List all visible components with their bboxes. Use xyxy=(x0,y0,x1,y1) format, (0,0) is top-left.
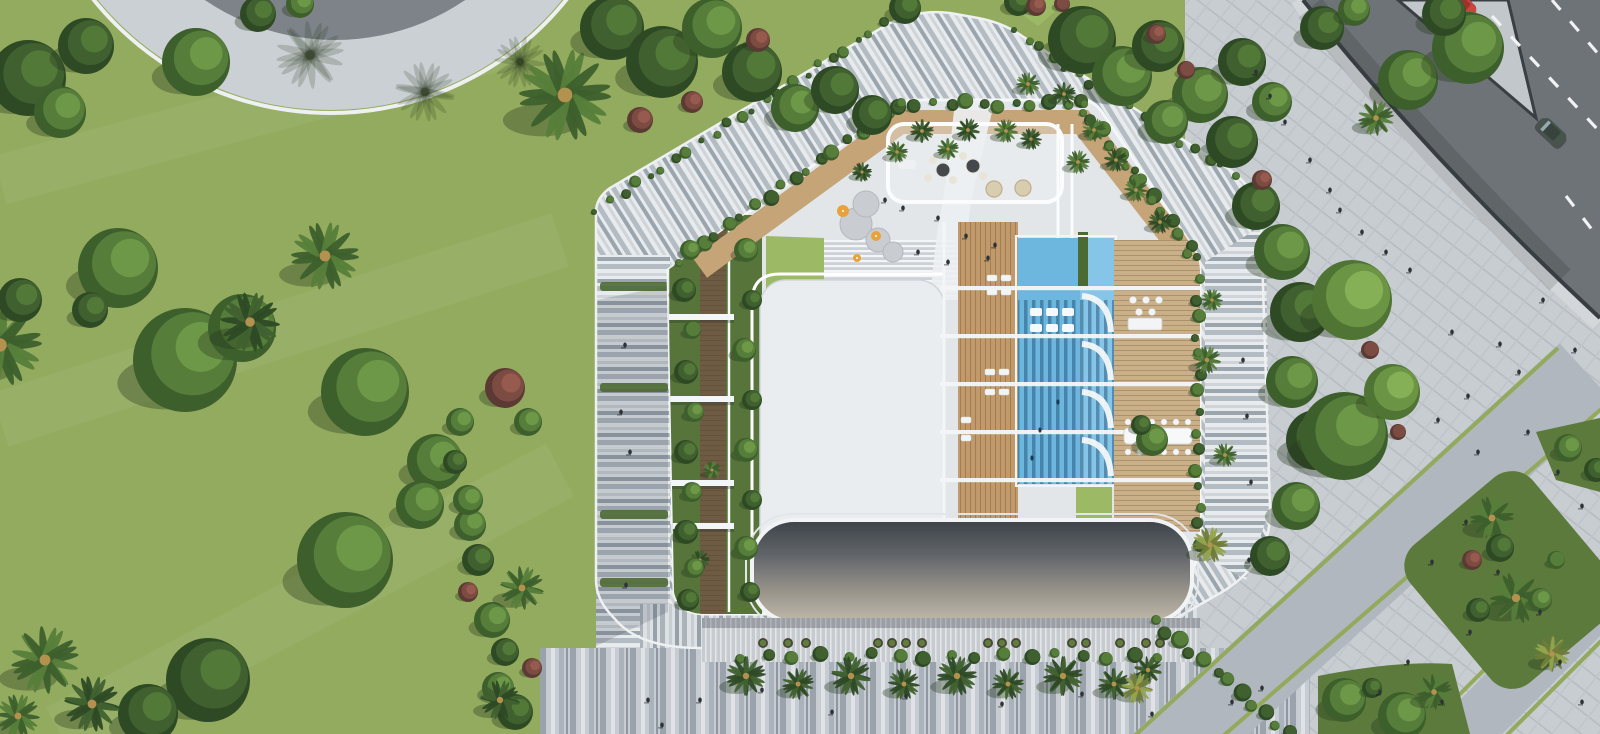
planter-plant xyxy=(803,640,809,646)
tree-highlight xyxy=(690,94,701,105)
person-marker xyxy=(916,250,920,255)
palm-crown xyxy=(88,700,97,709)
tree-highlight xyxy=(756,31,768,43)
palm-crown xyxy=(1207,542,1213,548)
person-marker xyxy=(619,410,623,415)
tree-highlight xyxy=(1277,232,1304,259)
pool-daybed xyxy=(1030,324,1042,332)
tree-canopy xyxy=(1014,99,1020,105)
planter-plant xyxy=(919,640,925,646)
tree-highlight xyxy=(684,363,696,375)
tree-canopy xyxy=(739,111,749,121)
tree-highlight xyxy=(416,487,439,510)
tree-highlight xyxy=(475,548,490,563)
tree-canopy xyxy=(1247,700,1257,710)
tree-highlight xyxy=(688,243,698,253)
person-marker xyxy=(1573,348,1577,353)
tree-canopy xyxy=(592,209,597,214)
tree-highlight xyxy=(682,281,694,293)
tree-highlight xyxy=(1538,591,1550,603)
palm-crown xyxy=(1549,651,1555,657)
tree-highlight xyxy=(525,412,538,425)
tree-highlight xyxy=(143,692,172,721)
person-marker xyxy=(986,256,990,261)
tree-highlight xyxy=(1162,106,1183,127)
tree-canopy xyxy=(1148,196,1156,204)
tree-canopy xyxy=(909,100,920,111)
person-marker xyxy=(964,234,968,239)
person-marker xyxy=(1384,250,1388,255)
tree-highlight xyxy=(467,513,482,528)
tree-canopy xyxy=(930,98,936,104)
tree-highlight xyxy=(692,561,702,571)
tree-canopy xyxy=(1174,631,1188,645)
tree-canopy xyxy=(1192,144,1200,152)
person-marker xyxy=(1450,330,1454,335)
palm-crown xyxy=(497,697,503,703)
tree-canopy xyxy=(1184,648,1194,658)
tree-canopy xyxy=(1195,443,1205,453)
person-marker xyxy=(1308,158,1312,163)
tree-canopy xyxy=(1193,429,1201,437)
person-marker xyxy=(1254,70,1258,75)
tree-highlight xyxy=(744,241,756,253)
tree-highlight xyxy=(1154,27,1164,37)
palm-crown xyxy=(1512,594,1520,602)
tree-highlight xyxy=(686,592,697,603)
umbrella-tip xyxy=(875,235,877,237)
planter-plant xyxy=(903,640,909,646)
tree-highlight xyxy=(692,405,702,415)
person-marker xyxy=(901,206,905,211)
tree-highlight xyxy=(1252,188,1275,211)
dining-chair xyxy=(1185,419,1191,425)
sun-lounger xyxy=(985,389,995,395)
tree-canopy xyxy=(1080,650,1090,660)
person-marker xyxy=(1498,342,1502,347)
tree-highlight xyxy=(1149,428,1164,443)
tree-canopy xyxy=(787,652,798,663)
palm-crown xyxy=(1114,158,1118,162)
tree-highlight xyxy=(868,100,887,119)
tree-canopy xyxy=(844,135,852,143)
tree-canopy xyxy=(1027,650,1040,663)
tree-canopy xyxy=(1550,552,1564,566)
person-marker xyxy=(830,710,834,715)
tree-highlight xyxy=(87,297,104,314)
bridge-shadow xyxy=(662,320,734,323)
tree-canopy xyxy=(1101,653,1112,664)
tree-canopy xyxy=(1154,653,1162,661)
tree-highlight xyxy=(1238,44,1261,67)
planter-plant xyxy=(1117,640,1123,646)
tree-canopy xyxy=(723,118,731,126)
tree-highlight xyxy=(606,5,637,36)
tree-canopy xyxy=(676,259,682,265)
tree-highlight xyxy=(744,441,756,453)
tree-canopy xyxy=(1025,100,1035,110)
tree-canopy xyxy=(1130,648,1143,661)
dining-chair xyxy=(1173,449,1179,455)
palm-crown xyxy=(14,712,21,719)
tree-highlight xyxy=(81,26,108,53)
tree-highlight xyxy=(466,585,476,595)
sun-lounger xyxy=(1001,275,1011,281)
person-marker xyxy=(1466,394,1470,399)
tree-highlight xyxy=(357,360,399,402)
sun-lounger xyxy=(987,275,997,281)
tree-highlight xyxy=(336,525,382,571)
palm-crown xyxy=(1026,82,1030,86)
tree-highlight xyxy=(748,585,758,595)
courtyard-bridge xyxy=(662,396,734,402)
tree-highlight xyxy=(1476,601,1488,613)
courtyard-bridge xyxy=(662,314,734,320)
person-marker xyxy=(623,343,627,348)
person-marker xyxy=(1496,570,1500,575)
person-marker xyxy=(1464,520,1468,525)
planter-plant xyxy=(1157,640,1163,646)
tree-canopy xyxy=(815,647,828,660)
terrace-chair xyxy=(949,176,957,184)
palm-crown xyxy=(1092,128,1096,132)
tree-canopy xyxy=(1198,652,1211,665)
tree-canopy xyxy=(1261,705,1274,718)
tree-highlight xyxy=(1287,363,1312,388)
tree-canopy xyxy=(1197,408,1203,414)
tree-highlight xyxy=(200,649,240,689)
sun-lounger xyxy=(999,389,1009,395)
play-pad xyxy=(853,191,879,217)
tree-canopy xyxy=(999,648,1010,659)
person-marker xyxy=(1260,686,1264,691)
pergola-beam xyxy=(940,478,1238,482)
tree-highlight xyxy=(16,284,37,305)
tree-canopy xyxy=(715,131,721,137)
pool-daybed xyxy=(1030,308,1042,316)
tree-canopy xyxy=(1188,240,1198,250)
palm-crown xyxy=(860,170,863,173)
person-marker xyxy=(1150,712,1154,717)
swimmer-marker xyxy=(1030,455,1033,460)
aerial-rendering xyxy=(0,0,1600,734)
person-marker xyxy=(883,198,887,203)
tree-highlight xyxy=(1462,22,1497,57)
terrace-chair xyxy=(959,152,967,160)
tree-canopy xyxy=(1271,721,1279,729)
person-marker xyxy=(1468,630,1472,635)
planter-plant xyxy=(1083,640,1089,646)
tree-highlight xyxy=(1340,684,1361,705)
person-marker xyxy=(904,694,908,699)
palm-crown xyxy=(920,129,924,133)
person-marker xyxy=(1526,430,1530,435)
building-cast-shadow xyxy=(596,286,668,646)
person-marker xyxy=(1247,558,1251,563)
palm-crown xyxy=(1111,681,1116,686)
tree-highlight xyxy=(1370,681,1380,691)
planter-plant xyxy=(999,640,1005,646)
person-marker xyxy=(1230,700,1234,705)
walkway-hedge-bar xyxy=(600,282,668,291)
palm-crown xyxy=(1060,673,1066,679)
palm-crown xyxy=(1134,188,1138,192)
person-marker xyxy=(936,216,940,221)
tree-canopy xyxy=(865,31,871,37)
planter-plant xyxy=(985,640,991,646)
palm-crown xyxy=(1005,681,1010,686)
tree-highlight xyxy=(684,443,696,455)
palm-crown xyxy=(1076,160,1080,164)
pool-daybed xyxy=(1046,324,1058,332)
tree-highlight xyxy=(638,111,650,123)
tree-highlight xyxy=(111,239,149,277)
tree-canopy xyxy=(736,214,742,220)
palm-crown xyxy=(1062,92,1066,96)
tree-canopy xyxy=(981,99,989,107)
tree-highlight xyxy=(831,72,854,95)
tree-highlight xyxy=(502,642,515,655)
person-marker xyxy=(1245,414,1249,419)
tree-canopy xyxy=(766,191,779,204)
terrace-chair xyxy=(924,174,932,182)
palm-crown xyxy=(1029,137,1033,141)
rattan-daybed xyxy=(1015,180,1031,196)
palm-crown xyxy=(1223,453,1227,457)
tree-canopy xyxy=(970,652,980,662)
person-marker xyxy=(624,583,628,588)
swimmer-marker xyxy=(1056,399,1059,404)
person-marker xyxy=(993,243,997,248)
person-marker xyxy=(1580,700,1584,705)
tree-canopy xyxy=(737,654,745,662)
person-marker xyxy=(1360,230,1364,235)
tree-canopy xyxy=(1192,334,1198,340)
palm-crown xyxy=(795,681,800,686)
tree-canopy xyxy=(607,196,613,202)
palm-crown xyxy=(558,88,573,103)
person-marker xyxy=(1430,560,1434,565)
tree-canopy xyxy=(896,650,907,661)
palm-crown xyxy=(518,584,525,591)
person-marker xyxy=(1517,370,1521,375)
tree-highlight xyxy=(489,607,506,624)
pouf-seat xyxy=(1130,297,1137,304)
tree-canopy xyxy=(1012,27,1017,32)
person-marker xyxy=(698,698,702,703)
tree-canopy xyxy=(1223,673,1234,684)
tree-highlight xyxy=(742,341,754,353)
tree-canopy xyxy=(1106,142,1114,150)
terrace-table xyxy=(936,163,950,177)
person-marker xyxy=(1241,358,1245,363)
tree-canopy xyxy=(1180,62,1194,76)
east-walkway xyxy=(1205,226,1270,580)
tree-canopy xyxy=(1237,684,1251,698)
tree-highlight xyxy=(1227,123,1252,148)
sun-lounger xyxy=(961,417,971,423)
tree-canopy xyxy=(1190,465,1201,476)
tree-canopy xyxy=(1193,517,1203,527)
pool-daybed xyxy=(1062,308,1074,316)
person-marker xyxy=(1558,660,1562,665)
tree-canopy xyxy=(789,76,799,86)
tree-highlight xyxy=(465,489,479,503)
tree-canopy xyxy=(1197,274,1205,282)
tree-highlight xyxy=(1076,15,1109,48)
palm-crown xyxy=(1205,358,1209,362)
tree-canopy xyxy=(1051,648,1059,656)
tree-canopy xyxy=(765,649,775,659)
tree-canopy xyxy=(681,147,691,157)
sun-lounger xyxy=(961,435,971,441)
umbrella-tip xyxy=(856,257,858,259)
pool-edge-hedge xyxy=(1078,232,1088,286)
tree-highlight xyxy=(190,37,223,70)
dining-chair xyxy=(1161,419,1167,425)
tree-canopy xyxy=(868,647,878,657)
terrace-table xyxy=(966,159,980,173)
pouf-seat xyxy=(1156,297,1163,304)
umbrella-tip xyxy=(842,210,844,212)
tree-canopy xyxy=(1123,163,1129,169)
person-marker xyxy=(1406,660,1410,665)
person-marker xyxy=(1328,188,1332,193)
tree-highlight xyxy=(750,393,760,403)
tree-canopy xyxy=(826,145,839,158)
person-marker xyxy=(1338,208,1342,213)
palm-crown xyxy=(1158,220,1162,224)
tree-highlight xyxy=(744,539,756,551)
walkway-hedge-bar xyxy=(600,578,668,587)
planter-plant xyxy=(889,640,895,646)
curved-canopy-roof xyxy=(752,520,1192,622)
sun-lounger xyxy=(985,369,995,375)
person-marker xyxy=(1249,480,1253,485)
tree-canopy xyxy=(1364,342,1378,356)
tree-highlight xyxy=(55,93,80,118)
tree-highlight xyxy=(747,50,776,79)
planter-plant xyxy=(1069,640,1075,646)
planter-plant xyxy=(1013,640,1019,646)
walkway-hedge-bar xyxy=(600,510,668,519)
person-marker xyxy=(1378,690,1382,695)
rattan-daybed xyxy=(986,181,1002,197)
person-marker xyxy=(1541,298,1545,303)
sun-lounger xyxy=(999,369,1009,375)
dining-chair xyxy=(1125,419,1131,425)
planter-plant xyxy=(760,640,766,646)
tree-canopy xyxy=(1027,38,1033,44)
palm-crown xyxy=(245,317,255,327)
palm-crown xyxy=(1210,298,1214,302)
tree-highlight xyxy=(1470,553,1480,563)
tree-highlight xyxy=(1565,438,1578,451)
person-marker xyxy=(1436,418,1440,423)
tree-canopy xyxy=(1174,228,1184,238)
person-marker xyxy=(628,450,632,455)
tree-canopy xyxy=(1080,109,1086,115)
tree-canopy xyxy=(993,101,1004,112)
pool-daybed xyxy=(1046,308,1058,316)
tree-canopy xyxy=(1194,310,1205,321)
tree-canopy xyxy=(1393,425,1406,438)
tree-highlight xyxy=(750,293,760,303)
person-marker xyxy=(1476,450,1480,455)
aerial-render-stage: Aerial top-down architectural rendering … xyxy=(0,0,1600,734)
swimmer-marker xyxy=(1038,427,1041,432)
dining-chair xyxy=(1125,449,1131,455)
tree-highlight xyxy=(453,453,465,465)
palm-crown xyxy=(1373,115,1379,121)
tree-canopy xyxy=(686,322,700,336)
tree-canopy xyxy=(710,233,718,241)
tree-canopy xyxy=(623,189,631,197)
person-marker xyxy=(946,260,950,265)
person-marker xyxy=(1080,692,1084,697)
palm-crown xyxy=(743,673,749,679)
person-marker xyxy=(1538,610,1542,615)
person-marker xyxy=(1000,702,1004,707)
planter-plant xyxy=(785,640,791,646)
tree-canopy xyxy=(857,37,862,42)
person-marker xyxy=(1440,700,1444,705)
tree-highlight xyxy=(1260,173,1270,183)
person-marker xyxy=(1268,94,1272,99)
tree-canopy xyxy=(1194,253,1200,259)
tree-canopy xyxy=(1081,100,1087,106)
tree-canopy xyxy=(631,176,641,186)
canopy-drop-shadow xyxy=(702,618,1200,628)
tree-highlight xyxy=(530,661,540,671)
tree-canopy xyxy=(658,167,664,173)
pouf-seat xyxy=(1143,297,1150,304)
person-marker xyxy=(1408,268,1412,273)
palm-crown xyxy=(711,469,714,472)
tree-highlight xyxy=(750,493,760,503)
planter-plant xyxy=(1143,640,1149,646)
tree-canopy xyxy=(1192,384,1203,395)
tree-canopy xyxy=(807,73,812,78)
play-pad xyxy=(883,242,903,262)
tree-canopy xyxy=(1132,167,1138,173)
palm-crown xyxy=(848,673,854,679)
pouf-seat xyxy=(1149,309,1156,316)
tree-canopy xyxy=(1233,172,1239,178)
tree-highlight xyxy=(1345,271,1383,309)
person-marker xyxy=(760,688,764,693)
palm-crown xyxy=(1134,685,1139,690)
tree-highlight xyxy=(457,412,470,425)
tree-canopy xyxy=(1195,482,1201,488)
dining-chair xyxy=(1173,419,1179,425)
person-marker xyxy=(1556,470,1560,475)
terrace-chair xyxy=(979,172,987,180)
bar-table xyxy=(1128,318,1162,330)
tree-canopy xyxy=(898,98,906,106)
tree-canopy xyxy=(751,199,761,209)
tree-canopy xyxy=(1184,249,1192,257)
palm-crown xyxy=(40,655,51,666)
tree-highlight xyxy=(707,6,736,35)
tree-highlight xyxy=(1139,418,1149,428)
tree-canopy xyxy=(1198,503,1206,511)
palm-crown xyxy=(966,128,970,132)
tree-highlight xyxy=(684,523,696,535)
palm-crown xyxy=(1146,668,1150,672)
tree-canopy xyxy=(1160,627,1171,638)
person-marker xyxy=(1580,504,1584,509)
